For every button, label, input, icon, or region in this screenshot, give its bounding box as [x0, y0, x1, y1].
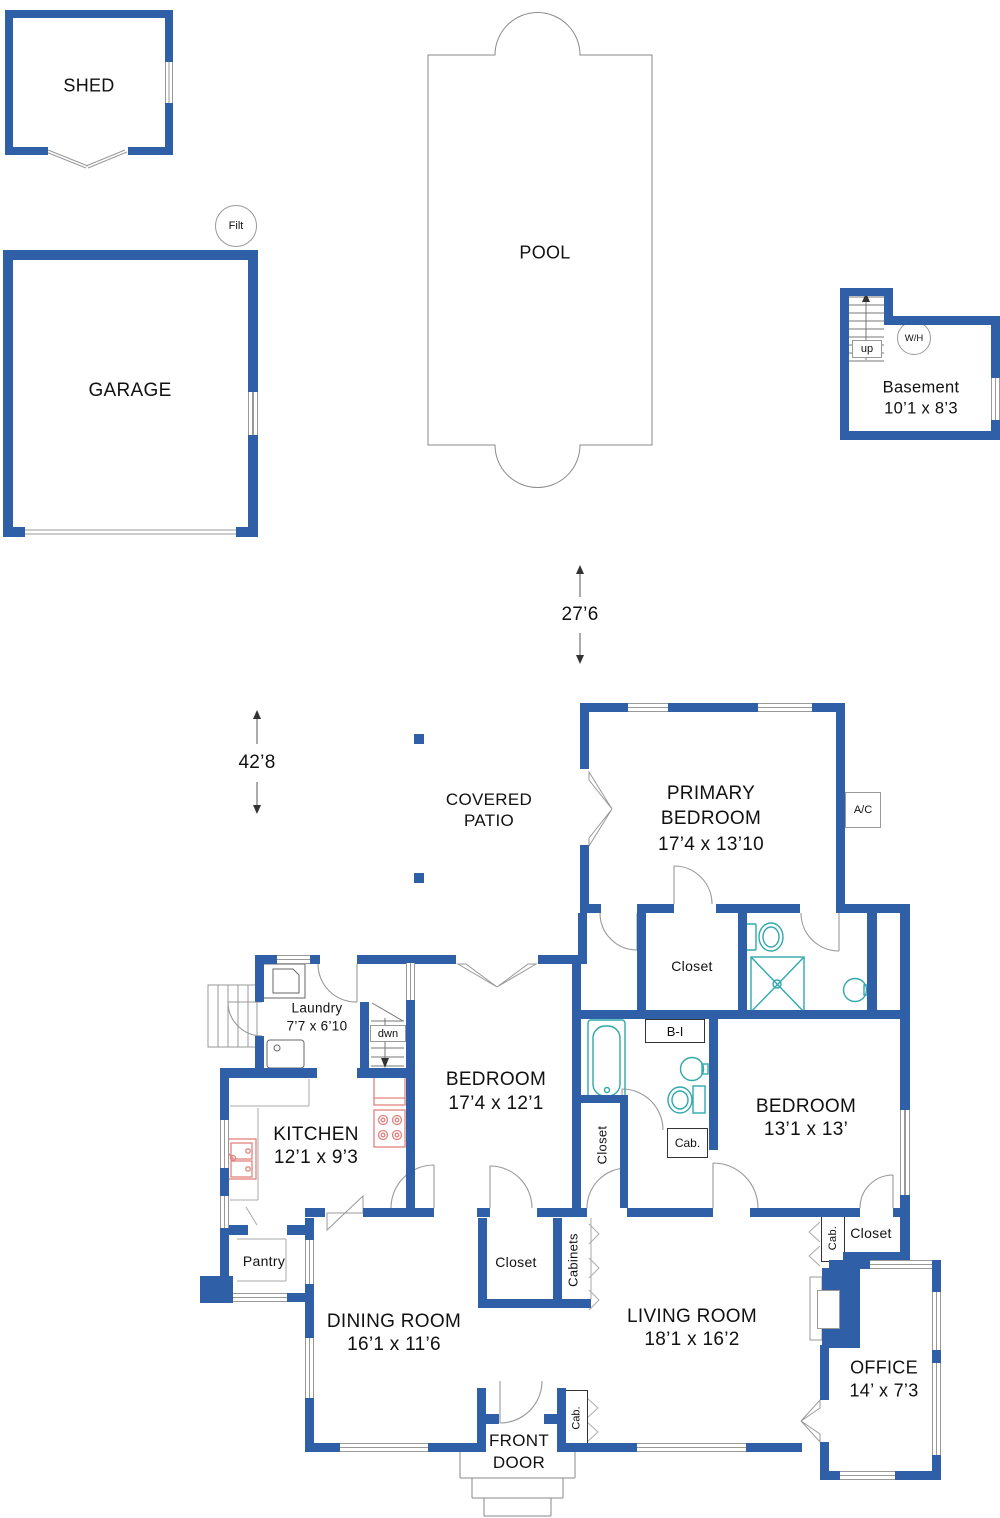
wall [746, 1443, 802, 1452]
wall [900, 1019, 910, 1110]
wall [557, 1388, 566, 1452]
wall [165, 10, 173, 62]
wall [305, 1218, 314, 1240]
counters [230, 1079, 309, 1281]
wall [840, 431, 1000, 440]
wall [900, 1218, 910, 1261]
wall [820, 1442, 829, 1480]
wall [248, 435, 258, 537]
floor-plan: SHED GARAGE POOL Filt Basement 10’1 x 8’… [0, 0, 1000, 1518]
window [840, 1471, 895, 1480]
wall [255, 955, 264, 1002]
wall [305, 1208, 325, 1217]
wall [900, 904, 910, 1019]
fireplace-hearth [817, 1290, 840, 1329]
window [932, 1292, 941, 1350]
wall [627, 1208, 713, 1217]
wall [363, 1208, 434, 1217]
wall [884, 316, 1000, 325]
window [900, 1110, 910, 1195]
wall [486, 1414, 499, 1424]
wall [538, 955, 587, 964]
exterior-steps [208, 985, 257, 1047]
laundry-appliances [263, 964, 305, 1068]
filter-label: Filt [229, 220, 244, 232]
basement-label: Basement [883, 379, 960, 398]
wall [738, 913, 747, 1010]
wall [668, 703, 758, 712]
dining-dims: 16’1 x 11’6 [347, 1334, 441, 1356]
bedroom-mid-label: BEDROOM [446, 1069, 546, 1091]
wall [637, 904, 674, 913]
wall [478, 1218, 487, 1308]
kitchen-label: KITCHEN [273, 1124, 359, 1146]
wall [220, 1168, 229, 1196]
bedroom-right-dims: 13’1 x 13’ [764, 1119, 848, 1141]
window [406, 963, 415, 1000]
wall [128, 147, 173, 155]
bedroom-mid-dims: 17’4 x 12’1 [448, 1093, 543, 1115]
wall [477, 1388, 486, 1452]
window [637, 1443, 746, 1452]
wall [310, 955, 320, 964]
wall [3, 250, 258, 260]
window [305, 1240, 314, 1284]
up-label: up [861, 343, 873, 355]
window [305, 1338, 314, 1398]
wall [580, 904, 601, 913]
bedroom-right-label: BEDROOM [756, 1096, 856, 1118]
wall [932, 1260, 941, 1292]
wall [414, 873, 424, 883]
entry-cab-label: Cab. [571, 1406, 583, 1429]
wall [248, 250, 258, 392]
ac-unit: A/C [845, 792, 881, 828]
bedroom-closet-label: Closet [850, 1225, 891, 1241]
wall [220, 1228, 229, 1277]
wall [840, 288, 849, 440]
living-dims: 18’1 x 16’2 [644, 1329, 739, 1351]
wall [836, 703, 845, 913]
wall [305, 1284, 314, 1338]
dim-depth: 42’8 [238, 752, 275, 774]
wall [716, 904, 800, 913]
hall-cab-label: Cab. [675, 1136, 700, 1150]
primary-bedroom-label-1: PRIMARY [667, 783, 755, 805]
wall [820, 1345, 829, 1400]
window [233, 1293, 287, 1302]
wall [414, 734, 424, 744]
primary-bedroom-dims: 17’4 x 13’10 [658, 834, 764, 856]
living-cab-box: Cab. [821, 1214, 845, 1262]
ac-label: A/C [854, 804, 872, 816]
window [932, 1363, 941, 1455]
wall [637, 913, 646, 1010]
wall [537, 1208, 587, 1217]
wall [750, 1208, 860, 1217]
wall [478, 1299, 591, 1308]
wall [580, 845, 589, 913]
pool-label: POOL [519, 243, 570, 264]
cabinets-label: Cabinets [566, 1233, 581, 1287]
wall [477, 1208, 490, 1217]
wall [5, 10, 173, 18]
living-cab-label: Cab. [827, 1226, 839, 1250]
wall [428, 1443, 477, 1452]
garage-door-line [25, 530, 236, 534]
wall [3, 527, 25, 537]
window [220, 1120, 229, 1168]
basement-dims: 10’1 x 8’3 [884, 400, 958, 419]
built-in-box: B-I [645, 1019, 705, 1043]
wall [867, 913, 877, 1010]
wall [305, 1443, 340, 1452]
wall [566, 1443, 637, 1452]
stairs-down-tag: dwn [370, 1025, 406, 1042]
wall [829, 1471, 840, 1480]
dim-width: 27’6 [561, 604, 598, 626]
wall [360, 1002, 369, 1078]
swing-door [327, 1196, 363, 1230]
wall [3, 250, 13, 537]
primary-closet-label: Closet [671, 958, 712, 974]
hall-closet-label: Closet [595, 1126, 610, 1165]
hall-cab-box: Cab. [667, 1128, 708, 1158]
wall [544, 1414, 557, 1424]
dining-closet-label: Closet [495, 1254, 536, 1270]
wall [5, 10, 13, 155]
wall [200, 1276, 233, 1303]
window [870, 1260, 932, 1269]
wall [236, 527, 258, 537]
wall [580, 1010, 910, 1019]
wall [406, 1000, 415, 1208]
office-dims: 14’ x 7’3 [849, 1381, 918, 1402]
wall [553, 1218, 562, 1308]
wh-label: W/H [905, 333, 923, 344]
dwn-label: dwn [378, 1028, 398, 1040]
wall [991, 325, 1000, 378]
primary-bedroom-label-2: BEDROOM [661, 808, 761, 830]
window [277, 955, 310, 964]
stairs-up-tag: up [852, 340, 882, 358]
kitchen-dims: 12’1 x 9’3 [274, 1147, 358, 1169]
front-door-label-2: DOOR [493, 1453, 545, 1473]
wall [932, 1350, 941, 1363]
window [991, 378, 1000, 420]
wall [709, 1019, 718, 1150]
shed-label: SHED [63, 76, 114, 97]
front-door-label-1: FRONT [489, 1431, 549, 1451]
wall [580, 703, 589, 769]
wall [895, 1471, 941, 1480]
dining-label: DINING ROOM [327, 1311, 461, 1333]
laundry-dims: 7’7 x 6’10 [287, 1019, 348, 1034]
wall [255, 1036, 264, 1068]
wall [620, 1095, 628, 1208]
window [628, 703, 668, 712]
window [340, 1443, 428, 1452]
window [248, 392, 258, 435]
patio-label-2: PATIO [464, 811, 514, 831]
living-label: LIVING ROOM [627, 1306, 757, 1328]
entry-cab-box: Cab. [565, 1390, 588, 1445]
wall [406, 955, 415, 963]
wall [220, 1068, 229, 1120]
wall [572, 964, 581, 1208]
window [220, 1196, 229, 1228]
wall [5, 147, 48, 155]
built-in-label: B-I [667, 1024, 684, 1039]
water-heater-badge: W/H [897, 321, 931, 355]
wall [829, 1260, 870, 1269]
wall [220, 1068, 317, 1078]
office-label: OFFICE [850, 1358, 918, 1379]
window [165, 62, 173, 103]
window [758, 703, 812, 712]
pool-filter-badge: Filt [215, 205, 257, 247]
patio-label-1: COVERED [446, 790, 532, 810]
pantry-label: Pantry [243, 1253, 285, 1269]
garage-label: GARAGE [88, 380, 171, 402]
dimension-arrows [253, 565, 584, 814]
shed-door-lines [46, 150, 127, 168]
laundry-label: Laundry [292, 1001, 343, 1016]
